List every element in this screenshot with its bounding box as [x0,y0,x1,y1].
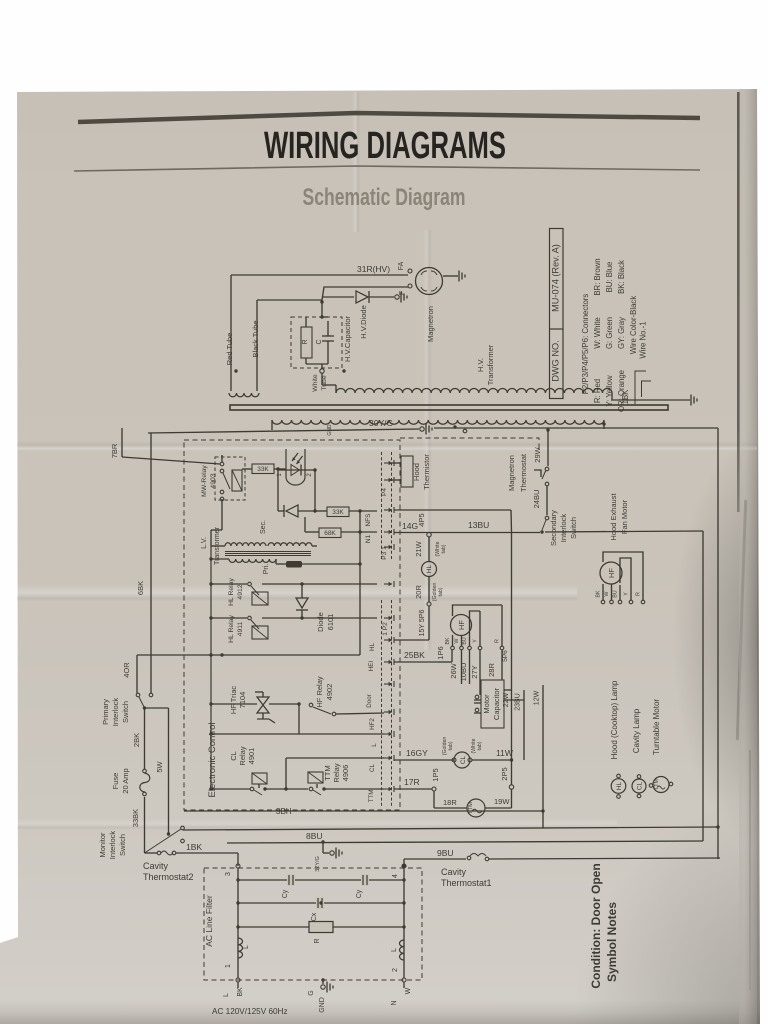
svg-text:Schematic Diagram: Schematic Diagram [303,184,466,211]
svg-text:WIRING DIAGRAMS: WIRING DIAGRAMS [264,125,506,167]
